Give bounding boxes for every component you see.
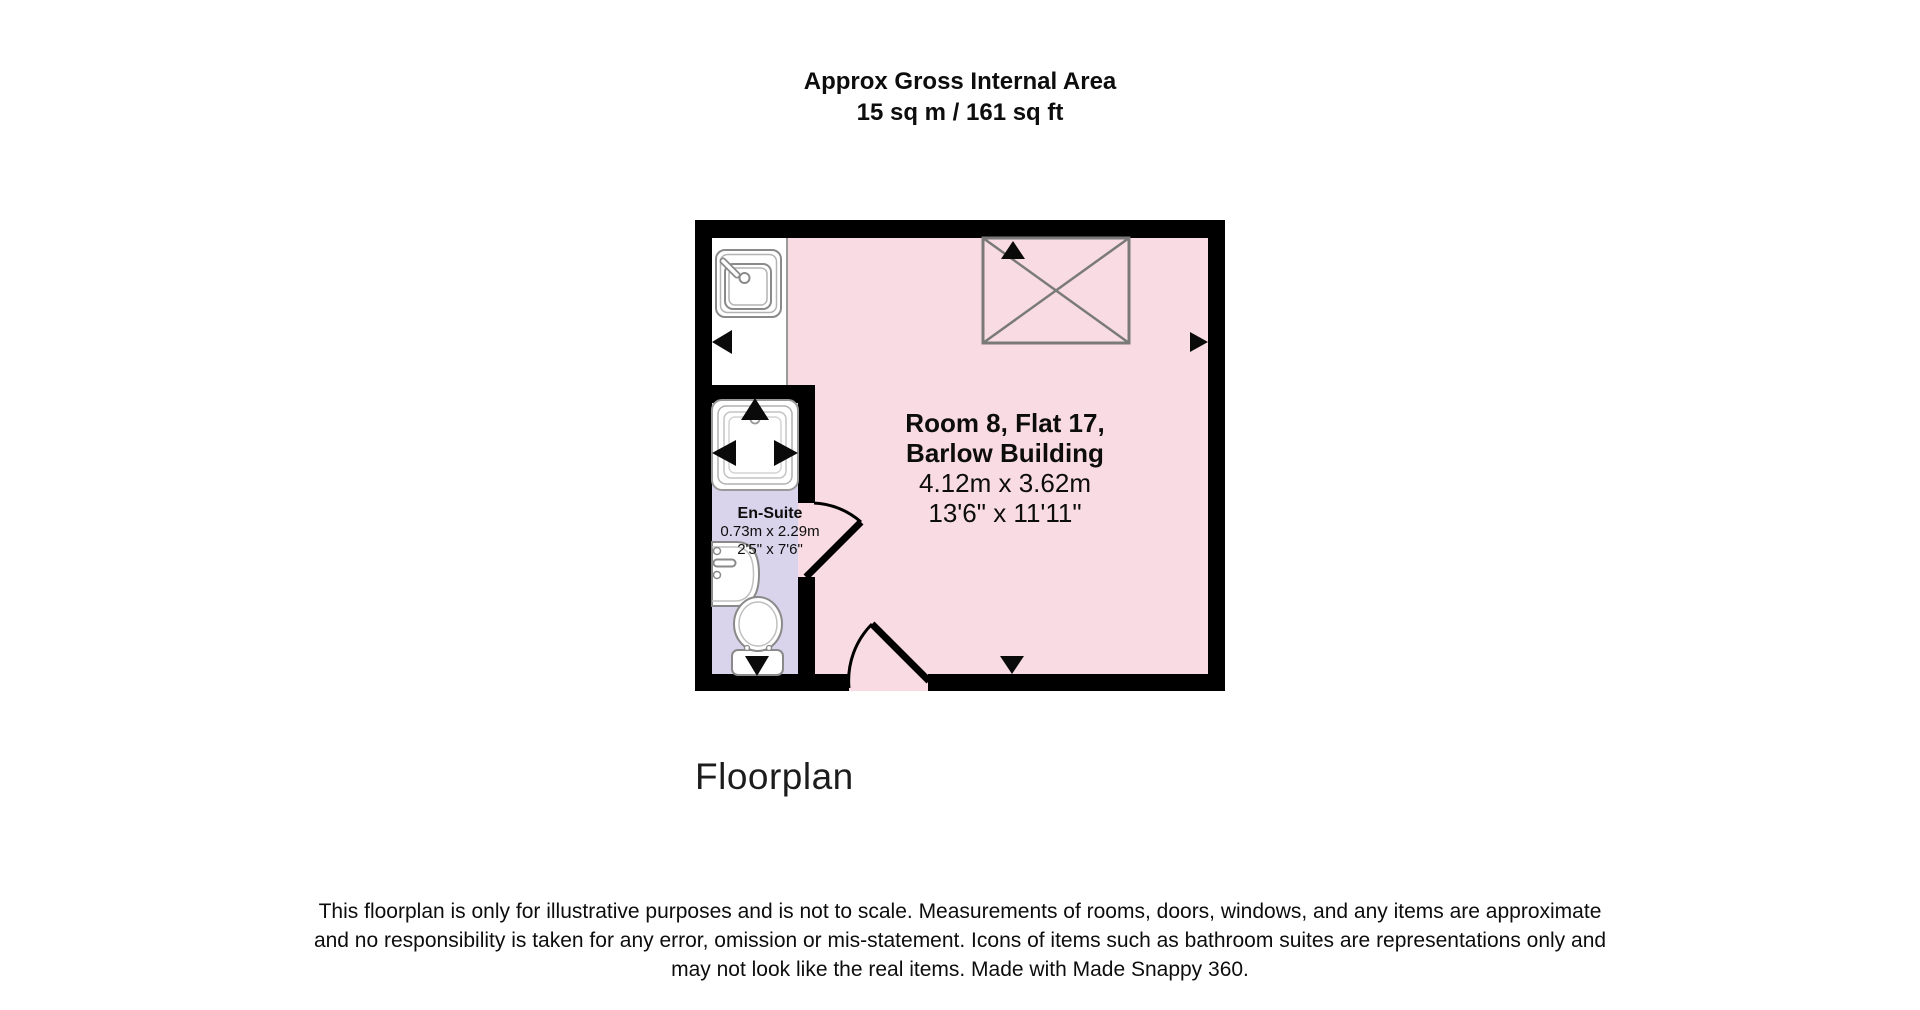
room-dims-imperial: 13'6" x 11'11" xyxy=(815,498,1195,528)
disclaimer-line-2: and no responsibility is taken for any e… xyxy=(0,926,1920,955)
door-swing-arc xyxy=(849,624,872,688)
gross-internal-area-title: Approx Gross Internal Area 15 sq m / 161… xyxy=(0,66,1920,128)
room-name-line-1: Room 8, Flat 17, xyxy=(815,408,1195,438)
main-room-label: Room 8, Flat 17, Barlow Building 4.12m x… xyxy=(815,408,1195,528)
view-arrow-down-icon xyxy=(1000,656,1024,674)
view-arrow-left-icon xyxy=(712,330,732,354)
ensuite-label: En-Suite 0.73m x 2.29m 2'5" x 7'6" xyxy=(695,505,845,559)
disclaimer-line-1: This floorplan is only for illustrative … xyxy=(0,897,1920,926)
ensuite-dims-imperial: 2'5" x 7'6" xyxy=(695,541,845,559)
disclaimer-text: This floorplan is only for illustrative … xyxy=(0,897,1920,984)
view-arrow-up-icon xyxy=(1001,241,1025,259)
room-dims-metric: 4.12m x 3.62m xyxy=(815,468,1195,498)
ensuite-name: En-Suite xyxy=(695,505,845,523)
door-leaf xyxy=(872,624,929,681)
room-name-line-2: Barlow Building xyxy=(815,438,1195,468)
view-arrow-right-icon xyxy=(1190,332,1208,352)
entry-door xyxy=(849,624,929,688)
floorplan-caption: Floorplan xyxy=(695,756,854,798)
disclaimer-line-3: may not look like the real items. Made w… xyxy=(0,955,1920,984)
ensuite-dims-metric: 0.73m x 2.29m xyxy=(695,523,845,541)
floorplan: Room 8, Flat 17, Barlow Building 4.12m x… xyxy=(695,220,1225,691)
kitchen-sink-icon xyxy=(716,250,781,317)
title-line-2: 15 sq m / 161 sq ft xyxy=(0,97,1920,128)
title-line-1: Approx Gross Internal Area xyxy=(0,66,1920,97)
